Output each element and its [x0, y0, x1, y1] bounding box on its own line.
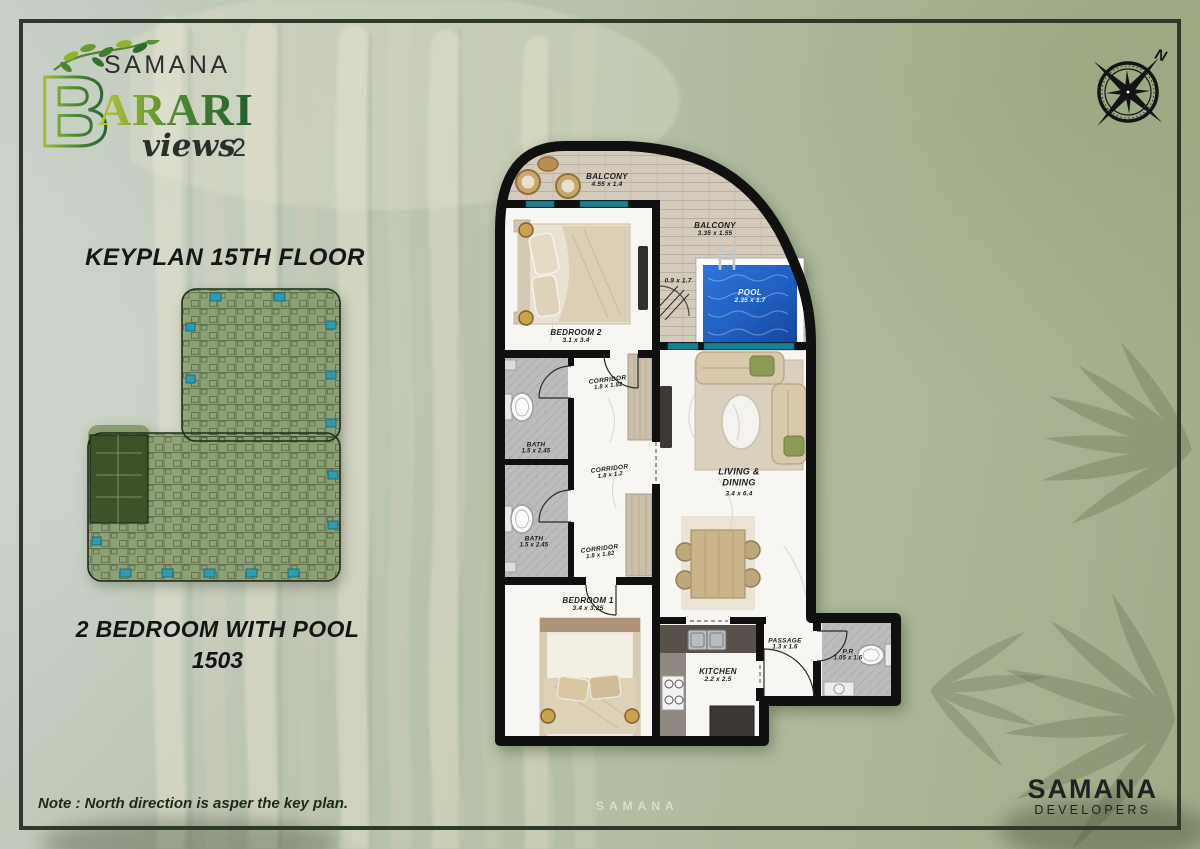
unit-number: 1503 — [45, 647, 390, 674]
unit-title: 2 BEDROOM WITH POOL 1503 — [45, 616, 390, 674]
floorplan: BALCONY 4.55 x 1.4 BALCONY 3.35 x 1.55 0… — [488, 138, 903, 768]
bedroom-2-bed — [514, 220, 630, 325]
compass-north-label: N — [1153, 46, 1170, 66]
pool — [696, 258, 804, 350]
developer-name: SAMANA — [1028, 774, 1159, 805]
background-palms — [870, 290, 1200, 849]
north-note: Note : North direction is asper the key … — [38, 795, 348, 812]
developer-logo: SAMANA DEVELOPERS — [1028, 774, 1159, 817]
developer-subtitle: DEVELOPERS — [1028, 803, 1159, 817]
logo-views-number: 2 — [232, 134, 246, 162]
keyplan-map — [82, 283, 354, 595]
dining-set — [676, 516, 760, 610]
compass-icon: N — [1082, 38, 1192, 148]
keyplan-title: KEYPLAN 15TH FLOOR — [60, 244, 390, 272]
building-facade-sign: SAMANA — [596, 799, 679, 813]
logo-samana: SAMANA — [104, 51, 231, 79]
floorplan-poster: SAMANA B SAM — [0, 0, 1200, 849]
bedroom-2-tv-unit — [638, 246, 648, 310]
unit-type: 2 BEDROOM WITH POOL — [45, 616, 390, 643]
brand-logo: B SAMANA ARARI views 2 — [36, 40, 306, 170]
bedroom-1-bed — [540, 618, 640, 738]
logo-views: views — [142, 128, 236, 164]
keyplan-highlighted-unit — [90, 435, 148, 523]
